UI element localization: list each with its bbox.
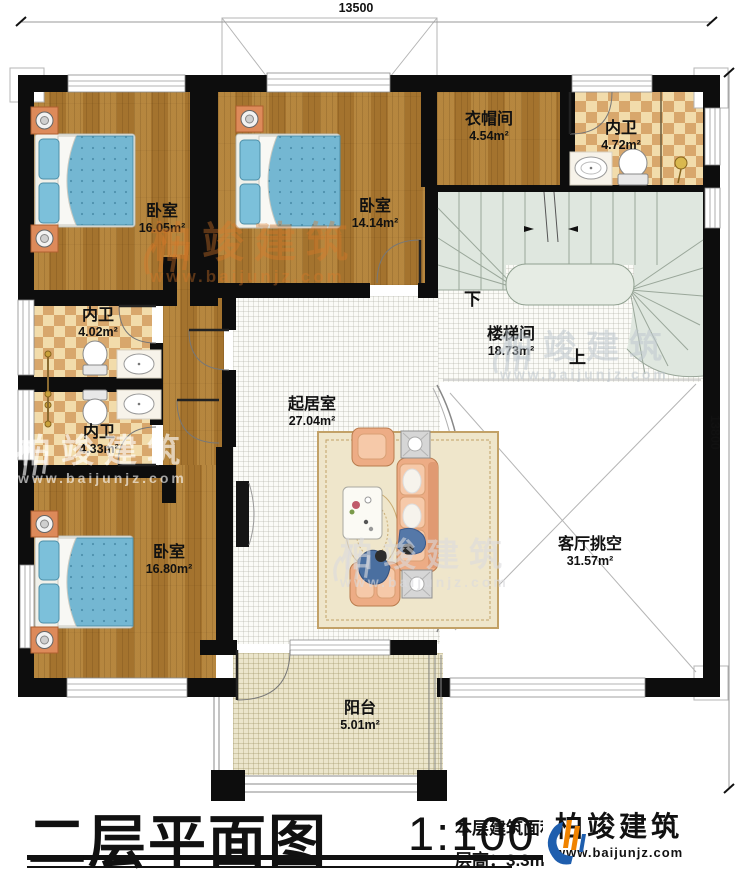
room-label-bedroom-2: 卧室14.14m² — [352, 198, 399, 231]
balcony-railing — [211, 655, 447, 801]
bed-bedroom-1 — [35, 134, 135, 227]
coffee-table — [343, 487, 382, 539]
floor-plan-page: 卧室16.05m² 卧室14.14m² 衣帽间4.54m² 内卫4.72m² 内… — [0, 0, 750, 880]
dimension-right: 13800 — [708, 415, 722, 450]
room-label-stairwell: 楼梯间18.73m² — [487, 326, 535, 359]
bed-bedroom-2 — [236, 134, 340, 228]
page-title: 二层平面图 — [28, 795, 328, 879]
room-label-bath-low: 内卫4.33m² — [79, 424, 119, 457]
room-label-bath-mid: 内卫4.02m² — [78, 307, 118, 340]
room-label-living: 起居室27.04m² — [288, 396, 336, 429]
stair-up-label: 上 — [569, 343, 586, 368]
company-logo: 柏竣建筑 www.baijunjz.com — [543, 810, 687, 862]
room-label-bath-top: 内卫4.72m² — [601, 120, 641, 153]
tv-unit — [236, 481, 254, 547]
room-label-bedroom-3: 卧室16.80m² — [146, 544, 193, 577]
stair-down-label: 下 — [464, 285, 481, 310]
dimension-top: 13500 — [320, 1, 392, 15]
room-label-cloakroom: 衣帽间4.54m² — [465, 111, 513, 144]
bath-low-fixtures — [45, 390, 161, 427]
room-label-void: 客厅挑空31.57m² — [558, 536, 622, 569]
scale-label: 1:100 — [408, 806, 536, 861]
room-label-bedroom-1: 卧室16.05m² — [139, 203, 186, 236]
bed-bedroom-3 — [35, 536, 133, 628]
room-label-balcony: 阳台5.01m² — [340, 700, 380, 733]
